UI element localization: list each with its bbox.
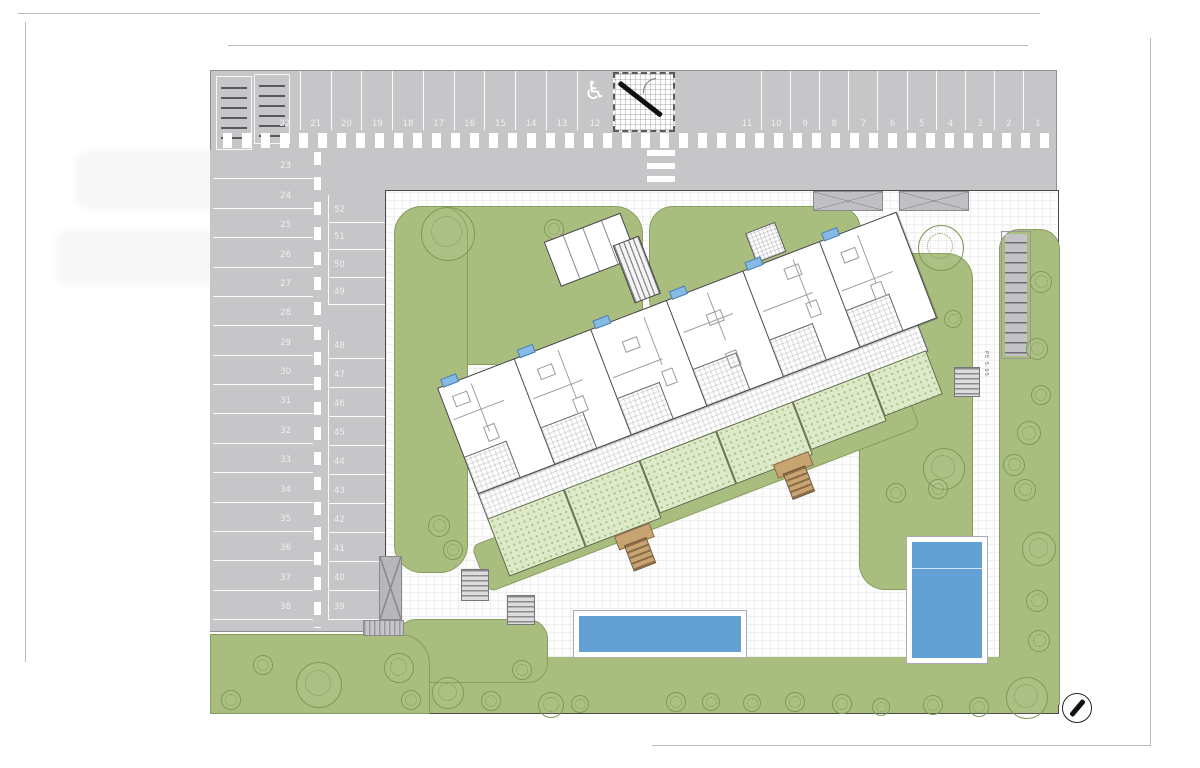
parking-stall-number: 25 <box>280 220 291 230</box>
furniture-outline <box>661 367 678 386</box>
parking-stall: 50 <box>328 250 385 278</box>
parking-stall-number: 15 <box>485 119 515 129</box>
parking-stall: 35 <box>213 503 313 532</box>
room-wall-line <box>643 317 662 365</box>
parking-stall-number: 50 <box>334 260 345 270</box>
parking-stall: 7 <box>849 70 878 130</box>
parking-stall-number: 46 <box>334 399 345 409</box>
site-plan-sheet: 2221201918171615141312♿ 1110987654321 23… <box>0 0 1200 768</box>
parking-stall-number: 6 <box>878 119 906 129</box>
parking-row-top-right: 1110987654321 <box>733 70 1052 130</box>
parking-stall: 40 <box>328 562 385 591</box>
parking-stall-number: 16 <box>455 119 485 129</box>
parking-stall-number: 43 <box>334 486 345 496</box>
parking-stall: 42 <box>328 504 385 533</box>
parking-stall-number: 7 <box>849 119 877 129</box>
parking-stall: 31 <box>213 385 313 414</box>
parking-stall: 15 <box>485 70 516 130</box>
road-edge-line <box>210 70 1057 71</box>
parking-stall: 2 <box>995 70 1024 130</box>
parking-stall: 10 <box>762 70 791 130</box>
parking-stall-number: 3 <box>966 119 994 129</box>
north-arrow-icon <box>1062 693 1092 723</box>
parking-stall: 1 <box>1024 70 1052 130</box>
parking-stall-number: 20 <box>332 119 362 129</box>
parking-stall: 25 <box>213 209 313 238</box>
parking-stall-number: 29 <box>280 338 291 348</box>
parking-stall: 20 <box>332 70 363 130</box>
parking-stall: 21 <box>301 70 332 130</box>
compass-needle <box>1069 699 1086 718</box>
parking-stall-number: 48 <box>334 341 345 351</box>
swimming-pool <box>907 537 987 663</box>
room-wall-line <box>613 358 663 378</box>
parking-stall: 16 <box>455 70 486 130</box>
room-wall-line <box>557 350 576 398</box>
parking-stall-number: 2 <box>995 119 1023 129</box>
road-edge-line <box>1056 70 1057 190</box>
parking-stall: 4 <box>937 70 966 130</box>
west-parking-road: 23242526272829303132333435363738 5251504… <box>210 150 385 632</box>
parking-stall: 33 <box>213 444 313 473</box>
ramp <box>379 556 402 620</box>
parking-stall: 26 <box>213 238 313 267</box>
parking-stall: 22 <box>270 70 301 130</box>
parking-stall: 5 <box>908 70 937 130</box>
furniture-outline <box>706 309 725 326</box>
road-marking-dashes <box>223 133 1053 148</box>
sheet-frame-line <box>1150 38 1151 746</box>
parking-stall-number: 9 <box>791 119 819 129</box>
parking-stall-number: 19 <box>362 119 392 129</box>
parking-stall-number: 21 <box>301 119 331 129</box>
parking-stall: 37 <box>213 561 313 590</box>
parking-stall-number: 49 <box>334 287 345 297</box>
parking-stall: 46 <box>328 388 385 417</box>
parking-stall-number: 28 <box>280 308 291 318</box>
parking-stall: 39 <box>328 591 385 620</box>
parking-stall-number: 42 <box>334 515 345 525</box>
furniture-outline <box>537 363 556 380</box>
parking-stall-number: 1 <box>1024 119 1052 129</box>
parking-stall: 17 <box>424 70 455 130</box>
parking-column-inner-lower: 48474645444342414039 <box>328 330 385 620</box>
parking-stall: 12♿ <box>578 70 612 130</box>
parking-stall-number: 23 <box>280 161 291 171</box>
parking-stall-number: 41 <box>334 544 345 554</box>
parking-stall-number: 30 <box>280 367 291 377</box>
parking-stall-number: 33 <box>280 455 291 465</box>
parking-stall-number: 37 <box>280 573 291 583</box>
parking-stall-number: 47 <box>334 370 345 380</box>
parking-stall: 38 <box>213 591 313 620</box>
parking-stall-number: 26 <box>280 250 291 260</box>
parking-stall-number: 12 <box>578 119 612 129</box>
road-center-dashes <box>314 152 321 628</box>
parking-stall-number: 45 <box>334 428 345 438</box>
parking-stall: 28 <box>213 297 313 326</box>
bike-racks <box>1001 231 1031 359</box>
parking-stall-number: 8 <box>820 119 848 129</box>
stairs <box>461 569 489 601</box>
parking-stall-number: 35 <box>280 514 291 524</box>
parking-stall: 32 <box>213 414 313 443</box>
furniture-outline <box>452 390 471 407</box>
parking-stall-number: 14 <box>516 119 546 129</box>
parking-stall: 24 <box>213 179 313 208</box>
lawn-area <box>210 634 430 714</box>
ramp <box>813 191 883 211</box>
parking-stall: 48 <box>328 330 385 359</box>
parking-stall: 8 <box>820 70 849 130</box>
parking-stall-number: 4 <box>937 119 965 129</box>
parking-stall: 47 <box>328 359 385 388</box>
parking-stall-number: 22 <box>270 119 300 129</box>
parking-stall-number: 40 <box>334 573 345 583</box>
room-wall-line <box>857 235 876 283</box>
parking-stall: 41 <box>328 533 385 562</box>
parking-stall-number: 11 <box>733 119 761 129</box>
parking-stall: 3 <box>966 70 995 130</box>
parking-stall: 14 <box>516 70 547 130</box>
parking-column-inner-upper: 52515049 <box>328 195 385 305</box>
parking-stall-number: 31 <box>280 396 291 406</box>
furniture-outline <box>621 336 640 353</box>
parking-stall: 51 <box>328 223 385 251</box>
parking-stall-number: 13 <box>547 119 577 129</box>
path-label: PE 5.05 <box>983 351 989 377</box>
parking-stall: 44 <box>328 446 385 475</box>
parking-stall-number: 24 <box>280 191 291 201</box>
pool-step-line <box>912 568 982 569</box>
furniture-outline <box>572 395 589 414</box>
parking-stall: 27 <box>213 268 313 297</box>
parking-stall: 9 <box>791 70 820 130</box>
furniture-outline <box>483 423 500 442</box>
parking-stall: 29 <box>213 326 313 355</box>
parking-stall-number: 38 <box>280 602 291 612</box>
parking-stall-number: 51 <box>334 232 345 242</box>
sheet-frame-line <box>18 13 1040 14</box>
sheet-frame-line <box>25 22 26 662</box>
pedestrian-entrance-gate <box>613 72 675 132</box>
parking-stall-number: 10 <box>762 119 790 129</box>
crosswalk <box>647 150 675 188</box>
room-wall-line <box>842 271 892 291</box>
parking-stall-number: 17 <box>424 119 454 129</box>
parking-stall-number: 39 <box>334 602 345 612</box>
sheet-frame-line <box>652 745 1150 746</box>
door-swing-icon <box>637 72 676 111</box>
road-edge-line <box>210 631 386 632</box>
ramp <box>899 191 969 211</box>
parking-stall: 11 <box>733 70 762 130</box>
parking-stall-number: 27 <box>280 279 291 289</box>
parking-stall: 52 <box>328 195 385 223</box>
parking-row-top-left: 2221201918171615141312♿ <box>270 70 612 130</box>
parking-stall: 36 <box>213 532 313 561</box>
parking-stall: 30 <box>213 356 313 385</box>
parking-stall-number: 32 <box>280 426 291 436</box>
furniture-outline <box>840 247 859 264</box>
parking-column-west: 23242526272829303132333435363738 <box>213 150 313 620</box>
parking-stall-number: 5 <box>908 119 936 129</box>
furniture-outline <box>805 299 822 318</box>
parking-stall: 34 <box>213 473 313 502</box>
ramp-steps <box>363 620 404 636</box>
parking-stall: 18 <box>393 70 424 130</box>
accessible-parking-icon: ♿ <box>578 78 612 103</box>
parking-stall: 19 <box>362 70 393 130</box>
parking-stall-number: 36 <box>280 543 291 553</box>
parking-stall-number: 52 <box>334 205 345 215</box>
parking-stall: 13 <box>547 70 578 130</box>
parking-stall: 45 <box>328 417 385 446</box>
parking-stall-number: 34 <box>280 485 291 495</box>
parking-stall: 23 <box>213 150 313 179</box>
parking-stall-number: 44 <box>334 457 345 467</box>
parking-stall-number: 18 <box>393 119 423 129</box>
parking-stall: 49 <box>328 278 385 306</box>
sheet-frame-line <box>228 45 1028 46</box>
parking-stall: 6 <box>878 70 907 130</box>
parking-stall: 43 <box>328 475 385 504</box>
